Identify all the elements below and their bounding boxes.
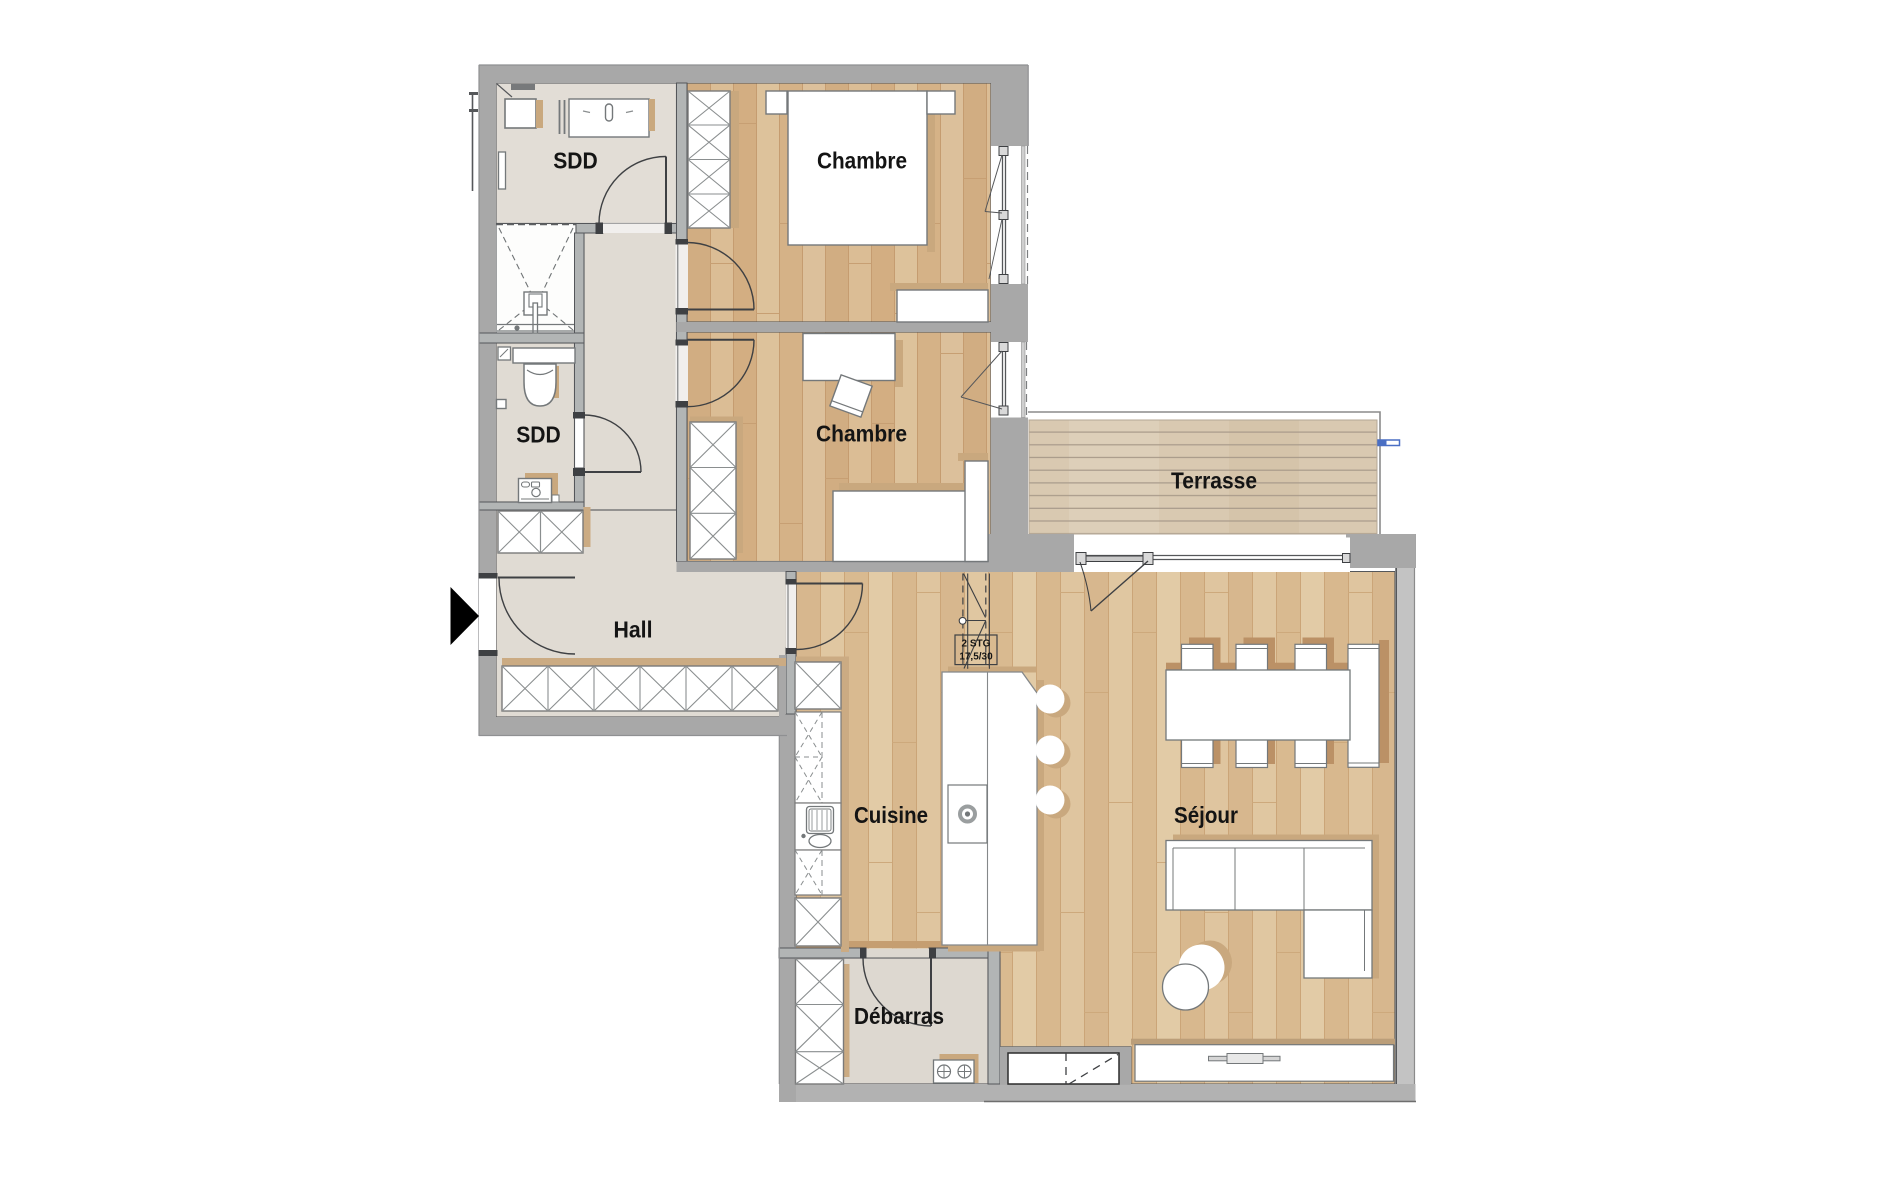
svg-text:Chambre: Chambre bbox=[816, 421, 907, 447]
svg-text:Cuisine: Cuisine bbox=[854, 802, 928, 828]
svg-text:SDD: SDD bbox=[516, 421, 561, 447]
svg-text:SDD: SDD bbox=[553, 147, 598, 173]
svg-text:Chambre: Chambre bbox=[817, 148, 907, 174]
svg-text:2 STG: 2 STG bbox=[962, 639, 991, 650]
svg-text:Terrasse: Terrasse bbox=[1171, 468, 1257, 494]
svg-text:Séjour: Séjour bbox=[1174, 802, 1238, 828]
svg-text:17,5/30: 17,5/30 bbox=[959, 652, 993, 663]
svg-text:Hall: Hall bbox=[614, 617, 653, 643]
svg-text:Débarras: Débarras bbox=[854, 1003, 944, 1029]
